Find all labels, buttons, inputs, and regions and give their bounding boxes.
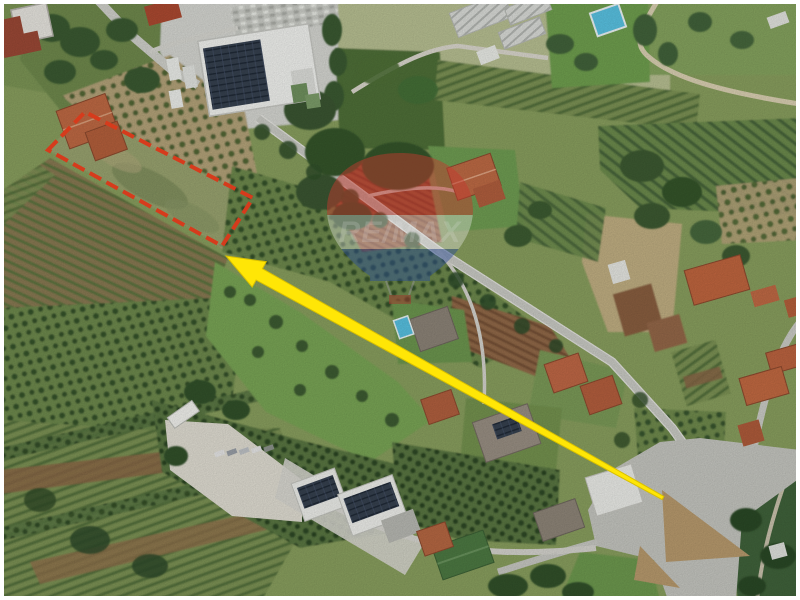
- watermark-text: RE/MAX: [339, 216, 463, 249]
- aerial-photo: RE/MAX: [0, 0, 800, 600]
- screenshot-frame: RE/MAX: [0, 0, 800, 600]
